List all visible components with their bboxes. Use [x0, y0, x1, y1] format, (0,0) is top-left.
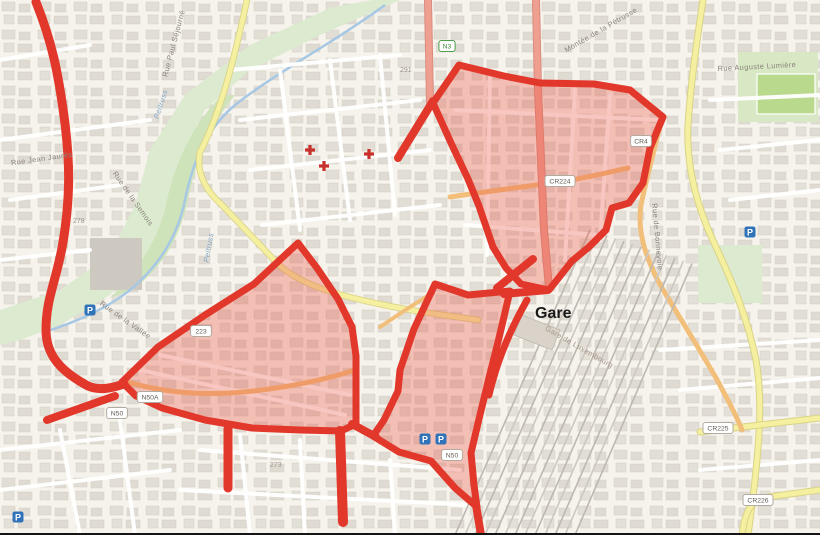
zone-connector-road: [476, 505, 481, 535]
gare-label: Gare: [535, 305, 572, 322]
parking-icon-letter: P: [747, 227, 753, 237]
road-ref-badge-text: CR4: [634, 139, 648, 146]
zone-connector-road: [504, 290, 548, 294]
pharmacy-cross-icon: [319, 164, 329, 167]
road-ref-badge-text: N50: [446, 453, 459, 460]
road-ref-badge-text: CR224: [549, 179, 570, 186]
road-ref-badge-text: 223: [195, 329, 207, 336]
parking-icon-letter: P: [422, 434, 428, 444]
parking-icon-letter: P: [15, 512, 21, 522]
pharmacy-cross-icon: [364, 152, 374, 155]
zone-connector-road: [340, 431, 343, 522]
map-canvas[interactable]: PPPPP PeitrussPeitrussRue Paul SéjournéM…: [0, 0, 820, 535]
road-ref-badge-text: N50: [111, 411, 124, 418]
elevation-marker: 278: [73, 218, 85, 225]
road-ref-badge-text: CR226: [747, 498, 768, 505]
road-ref-badge-text: N50A: [141, 395, 158, 402]
elevation-marker: 291: [400, 67, 412, 74]
elevation-marker: 273: [270, 462, 282, 469]
parking-icon-letter: P: [438, 434, 444, 444]
road-ref-badge-text: N3: [443, 44, 452, 51]
road-ref-badge-text: CR225: [707, 426, 728, 433]
pharmacy-cross-icon: [305, 148, 315, 151]
parking-icon-letter: P: [87, 305, 93, 315]
